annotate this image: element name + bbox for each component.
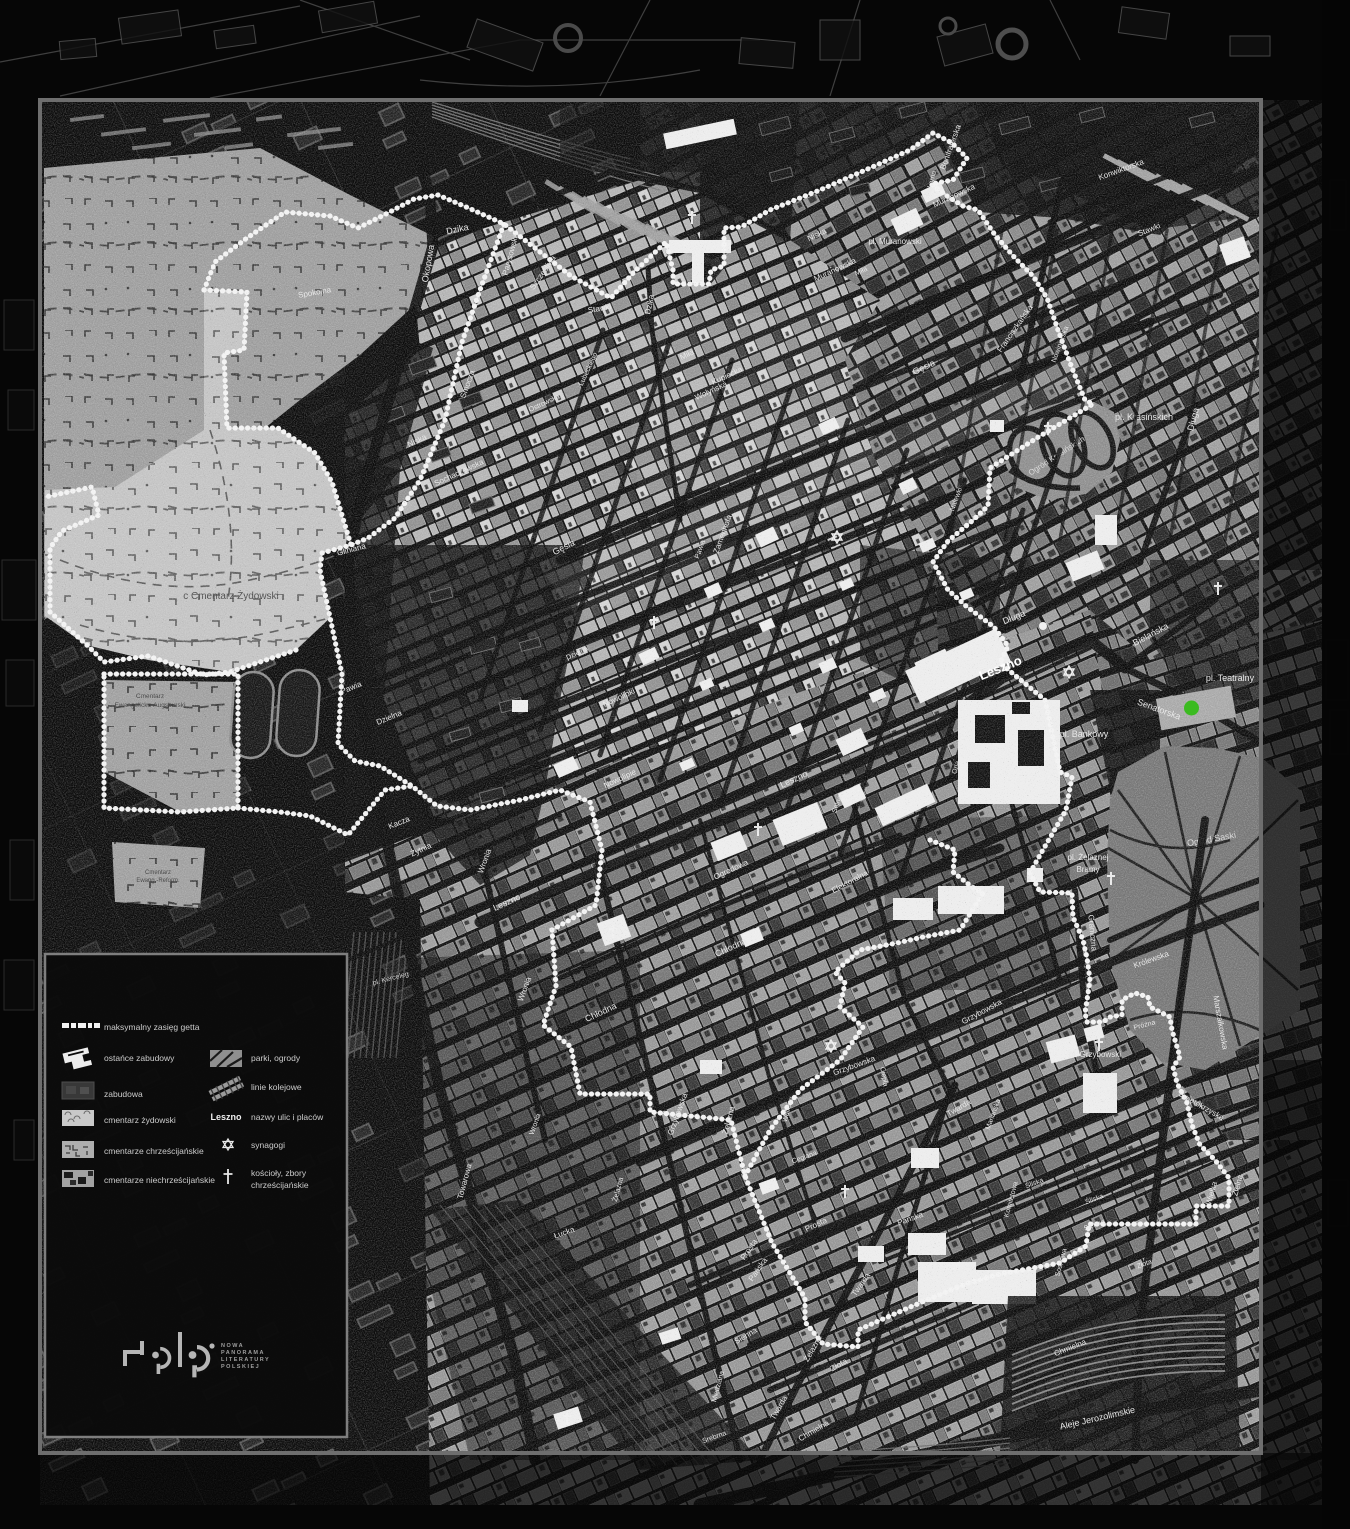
svg-text:NOWA: NOWA bbox=[221, 1343, 244, 1349]
svg-text:LITERATURY: LITERATURY bbox=[221, 1357, 270, 1363]
svg-text:cmentarze chrześcijańskie: cmentarze chrześcijańskie bbox=[104, 1146, 204, 1156]
svg-text:pl. Bankowy: pl. Bankowy bbox=[1060, 729, 1109, 739]
svg-text:ostańce zabudowy: ostańce zabudowy bbox=[104, 1053, 175, 1063]
svg-text:PANORAMA: PANORAMA bbox=[221, 1350, 265, 1356]
svg-text:cmentarze niechrześcijańskie: cmentarze niechrześcijańskie bbox=[104, 1175, 215, 1185]
svg-text:Leszno: Leszno bbox=[210, 1112, 242, 1122]
svg-text:POLSKIEJ: POLSKIEJ bbox=[221, 1364, 260, 1370]
svg-text:parki, ogrody: parki, ogrody bbox=[251, 1053, 301, 1063]
svg-text:Bramy: Bramy bbox=[1076, 865, 1099, 874]
svg-text:zabudowa: zabudowa bbox=[104, 1089, 143, 1099]
svg-text:linie kolejowe: linie kolejowe bbox=[251, 1082, 302, 1092]
svg-text:chrześcijańskie: chrześcijańskie bbox=[251, 1180, 309, 1190]
svg-text:maksymalny zasięg getta: maksymalny zasięg getta bbox=[104, 1022, 200, 1032]
svg-text:pl. Muranowski: pl. Muranowski bbox=[868, 237, 922, 246]
svg-text:pl. Żelaznej: pl. Żelaznej bbox=[1068, 853, 1109, 862]
svg-text:cmentarz żydowski: cmentarz żydowski bbox=[104, 1115, 176, 1125]
svg-text:nazwy ulic i placów: nazwy ulic i placów bbox=[251, 1112, 324, 1122]
svg-text:synagogi: synagogi bbox=[251, 1140, 285, 1150]
svg-text:pl. Teatralny: pl. Teatralny bbox=[1206, 673, 1255, 683]
svg-text:kościoły, zbory: kościoły, zbory bbox=[251, 1168, 307, 1178]
svg-text:pl. Grzybowski: pl. Grzybowski bbox=[1069, 1050, 1121, 1059]
